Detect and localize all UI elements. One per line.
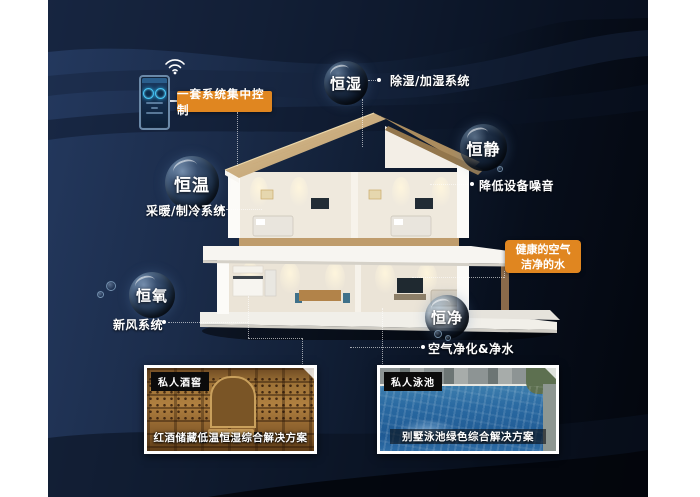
photo-tag: 私人泳池	[384, 372, 442, 391]
connector-dotted	[430, 184, 468, 185]
bubble-constant-oxygen: 恒氧	[129, 272, 175, 318]
highlight-line1: 健康的空气	[516, 242, 571, 257]
bubble-constant-quiet: 恒静	[460, 124, 507, 171]
central-control-label: 一套系统集中控制	[177, 91, 272, 112]
callout-heating-cooling-system: 采暖/制冷系统	[146, 202, 226, 219]
callout-dehumidify-system: 除湿/加湿系统	[390, 72, 470, 89]
wall-art	[261, 190, 273, 199]
dining-chair	[343, 293, 350, 303]
photo-caption: 别墅泳池绿色综合解决方案	[390, 429, 546, 444]
callout-fresh-air-system: 新风系统	[113, 316, 163, 333]
deco-bubble	[434, 330, 442, 338]
control-knob	[143, 88, 154, 99]
connector-dotted	[350, 347, 420, 348]
highlight-line2: 洁净的水	[521, 257, 565, 272]
infographic-page: 一套系统集中控制 恒湿 恒静 恒温 恒氧 恒净 除湿/加湿系统 降低设备噪音 采…	[0, 0, 700, 497]
wine-rack-arch	[210, 376, 256, 428]
smart-panel-screen	[142, 78, 167, 127]
tv-screen	[397, 278, 423, 293]
photo-caption: 红酒储藏低温恒湿综合解决方案	[147, 430, 314, 445]
photo-corner-fold	[303, 368, 314, 379]
connector-dotted	[237, 112, 238, 166]
deco-bubble	[106, 281, 116, 291]
smart-panel-device	[139, 75, 170, 130]
house-cutaway-illustration	[195, 100, 565, 340]
fridge	[265, 270, 276, 296]
wall-art	[369, 190, 381, 199]
kitchen-cabinets	[233, 266, 263, 273]
connector-dotted	[368, 80, 376, 81]
connector-dotted	[226, 209, 262, 210]
highlight-box-healthy-air-water: 健康的空气 洁净的水	[505, 240, 581, 273]
connector-dotted	[382, 308, 383, 366]
callout-bullet	[377, 78, 381, 82]
callout-bullet	[162, 320, 166, 324]
connector-dotted	[248, 338, 302, 339]
callout-noise-reduction: 降低设备噪音	[479, 177, 554, 194]
connector-dotted	[168, 322, 248, 323]
bedroom-tv	[415, 198, 433, 209]
control-knob	[155, 88, 166, 99]
callout-bullet	[219, 207, 223, 211]
connector-dotted	[412, 277, 504, 278]
wifi-icon	[164, 57, 186, 75]
tv-console	[394, 294, 426, 300]
callout-air-water-purification: 空气净化&净水	[428, 340, 514, 357]
connector-dotted	[248, 296, 249, 338]
callout-bullet	[421, 345, 425, 349]
callout-bullet	[470, 182, 474, 186]
connector-dotted	[362, 99, 363, 147]
connector-dotted	[302, 338, 303, 366]
bedroom-tv	[311, 198, 329, 209]
bubble-constant-purity: 恒净	[425, 295, 469, 339]
photo-corner-fold	[545, 368, 556, 379]
wine-cellar-photo: 私人酒窖 红酒储藏低温恒湿综合解决方案	[144, 365, 317, 454]
deco-bubble	[497, 166, 503, 172]
connector-dotted	[504, 271, 505, 278]
dining-table	[299, 290, 341, 301]
photo-tag: 私人酒窖	[151, 372, 209, 391]
deco-bubble	[97, 291, 104, 298]
pool-photo: 私人泳池 别墅泳池绿色综合解决方案	[377, 365, 559, 454]
